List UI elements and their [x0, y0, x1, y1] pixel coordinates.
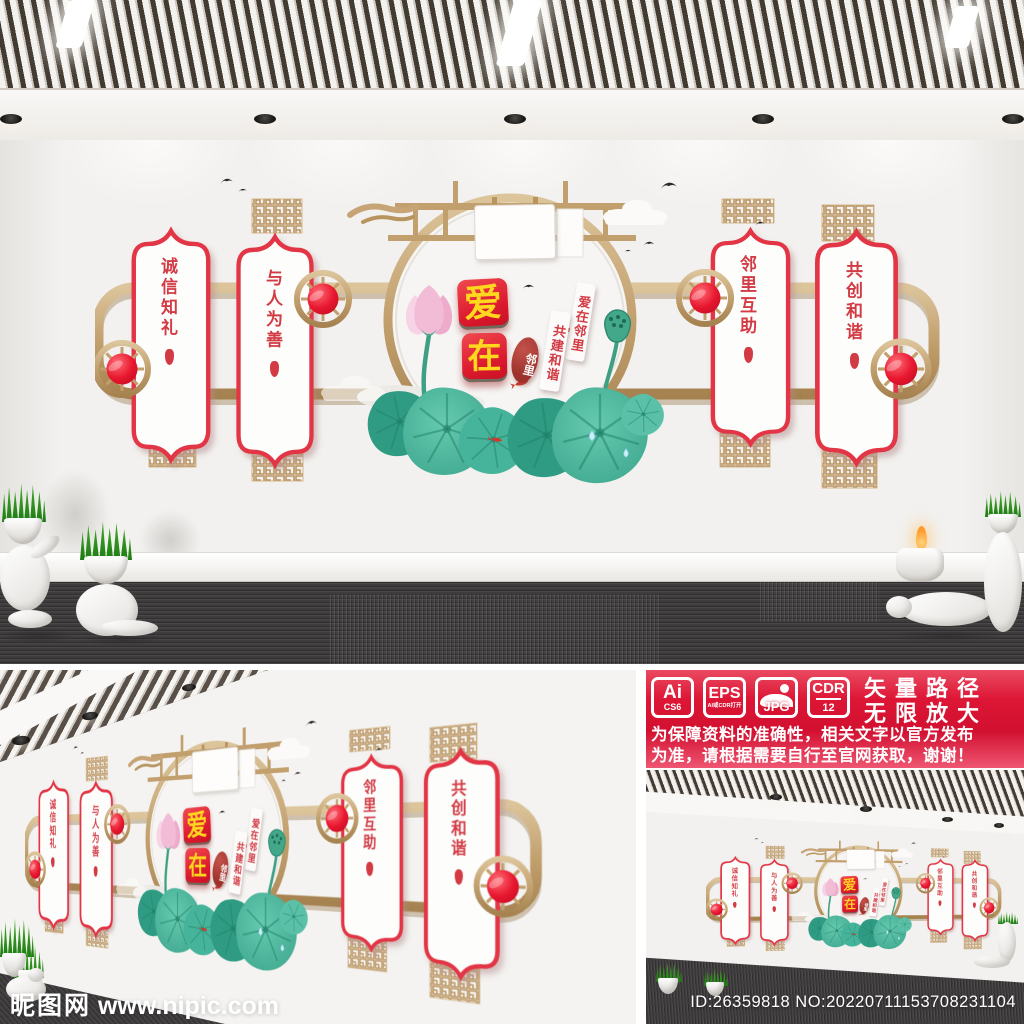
downlight-icon [994, 823, 1004, 828]
panel-text-4: 共创和谐 [844, 261, 861, 343]
lattice-medallion [105, 806, 129, 842]
vector-slogan: 矢量路径 无限放大 [864, 676, 1022, 726]
cloud [267, 736, 309, 761]
carpet-tile [760, 582, 880, 622]
panel-text-3: 邻里互助 [738, 255, 755, 337]
panel-text-2: 与人为善 [770, 872, 776, 902]
figurine-shadow [0, 628, 75, 644]
carpet-floor [646, 955, 1024, 1024]
cloud [116, 877, 146, 896]
panel-text-1: 诚信知礼 [159, 257, 176, 339]
cloud [791, 911, 814, 920]
lattice-medallion [477, 859, 531, 916]
cloud [321, 376, 385, 401]
lattice-medallion [96, 343, 148, 395]
panel-text-2: 与人为善 [91, 804, 98, 859]
downlight-icon [860, 806, 872, 812]
title-char-love: 爱 [840, 876, 858, 895]
watermark: 昵图网 www.nipic.com [10, 986, 279, 1022]
disclaimer-line-1: 为保障资料的准确性，相关文字以官方发布 [651, 725, 1021, 746]
downlight-icon [942, 817, 953, 822]
skirting-board [0, 552, 1024, 582]
title-char-love: 爱 [457, 278, 510, 331]
panel-text-4: 共创和谐 [971, 871, 976, 899]
lattice-medallion [874, 342, 929, 397]
eps-format-icon: EPS AI或CDR打开 [703, 677, 746, 718]
title-char-at: 在 [185, 848, 210, 886]
figurine-leg [8, 610, 52, 628]
cdr-format-icon: CDR 12 [807, 677, 850, 718]
culture-wall-art: 诚信知礼 与人为善 邻里互助 共创和谐 爱 在 邻里 爱在邻里 共建和谐 [706, 832, 1006, 961]
figurine-leg [100, 620, 158, 636]
downlight-icon [0, 114, 22, 124]
divider [636, 664, 646, 1024]
culture-wall-art: 诚信知礼 与人为善 邻里互助 共创和谐 爱 在 邻里 爱在邻里 共建和谐 [95, 165, 955, 505]
thumbnail-render: ID:26359818 NO:20220711153708231104 [646, 770, 1024, 1024]
panel-text-1: 诚信知礼 [49, 799, 56, 851]
downlight-icon [770, 794, 782, 800]
format-icons-row: Ai CS6 EPS AI或CDR打开 JPG CDR 12 [651, 677, 850, 718]
lattice-medallion [917, 874, 934, 892]
closeup-render: 昵图网 www.nipic.com [0, 670, 636, 1024]
slogan-line-2: 无限放大 [864, 701, 1022, 726]
figurine-body [974, 956, 1010, 968]
format-name: JPG [758, 700, 795, 713]
candle-flame-icon [916, 526, 927, 550]
format-sub: CS6 [664, 703, 682, 712]
lattice-medallion [783, 874, 802, 893]
lattice-medallion [679, 272, 731, 324]
panel-text-3: 邻里互助 [936, 868, 942, 897]
panel-text-4: 共创和谐 [449, 779, 464, 859]
figurine-head [28, 968, 44, 982]
format-sub: 12 [822, 703, 834, 714]
downlight-icon [504, 114, 526, 124]
panel-text-3: 邻里互助 [362, 779, 375, 853]
title-char-at: 在 [842, 896, 858, 914]
lotus-seedpod [269, 830, 286, 857]
cloud-swirl-ornament [130, 756, 162, 770]
main-render: 诚信知礼 与人为善 邻里互助 共创和谐 爱 在 邻里 爱在邻里 共建和谐 [0, 0, 1024, 664]
format-banner: Ai CS6 EPS AI或CDR打开 JPG CDR 12 矢量路径 无限放大 [646, 670, 1024, 768]
carpet-tile [330, 594, 660, 664]
figurine-head [886, 596, 912, 618]
figurine-shadow [888, 630, 1003, 642]
figurine-body [984, 532, 1022, 632]
lotus-seedpod [605, 310, 631, 342]
divider [0, 664, 1024, 670]
downlight-icon [254, 114, 276, 124]
format-name: CDR [812, 681, 845, 696]
figurine-body [900, 592, 992, 626]
lattice-medallion [707, 900, 727, 920]
title-char-love: 爱 [183, 806, 212, 846]
divider [646, 768, 1024, 770]
sun-icon [780, 684, 789, 693]
photo-id-text: ID:26359818 NO:20220711153708231104 [690, 993, 1016, 1012]
divider-line [816, 698, 842, 700]
cloud-swirl-ornament [802, 849, 826, 855]
format-name: EPS [708, 686, 740, 702]
panel-text-2: 与人为善 [264, 269, 281, 351]
lotus-seedpod [892, 887, 901, 898]
stock-preview-page: 诚信知礼 与人为善 邻里互助 共创和谐 爱 在 邻里 爱在邻里 共建和谐 [0, 0, 1024, 1024]
lattice-medallion [318, 795, 356, 841]
watermark-site-url: www.nipic.com [91, 992, 279, 1020]
culture-wall-graphics [95, 165, 955, 505]
lattice-medallion [26, 853, 45, 886]
title-char-at: 在 [462, 333, 508, 383]
lattice-medallion [297, 273, 349, 325]
format-sub: AI或CDR打开 [708, 704, 742, 710]
ai-format-icon: Ai CS6 [651, 677, 694, 718]
format-name: Ai [663, 683, 682, 702]
slogan-line-1: 矢量路径 [864, 676, 1022, 701]
panel-text-1: 诚信知礼 [731, 867, 737, 898]
jpg-format-icon: JPG [755, 677, 798, 718]
lattice-medallion [981, 898, 998, 917]
downlight-icon [1002, 114, 1024, 124]
disclaimer-text: 为保障资料的准确性，相关文字以官方发布 为准，请根据需要自行至官网获取，谢谢！ [651, 725, 1021, 767]
disclaimer-line-2: 为准，请根据需要自行至官网获取，谢谢！ [651, 746, 1021, 767]
watermark-site-name: 昵图网 [10, 993, 91, 1020]
downlight-icon [752, 114, 774, 124]
candle-cup [896, 548, 944, 582]
cloud-swirl-ornament [350, 207, 416, 222]
